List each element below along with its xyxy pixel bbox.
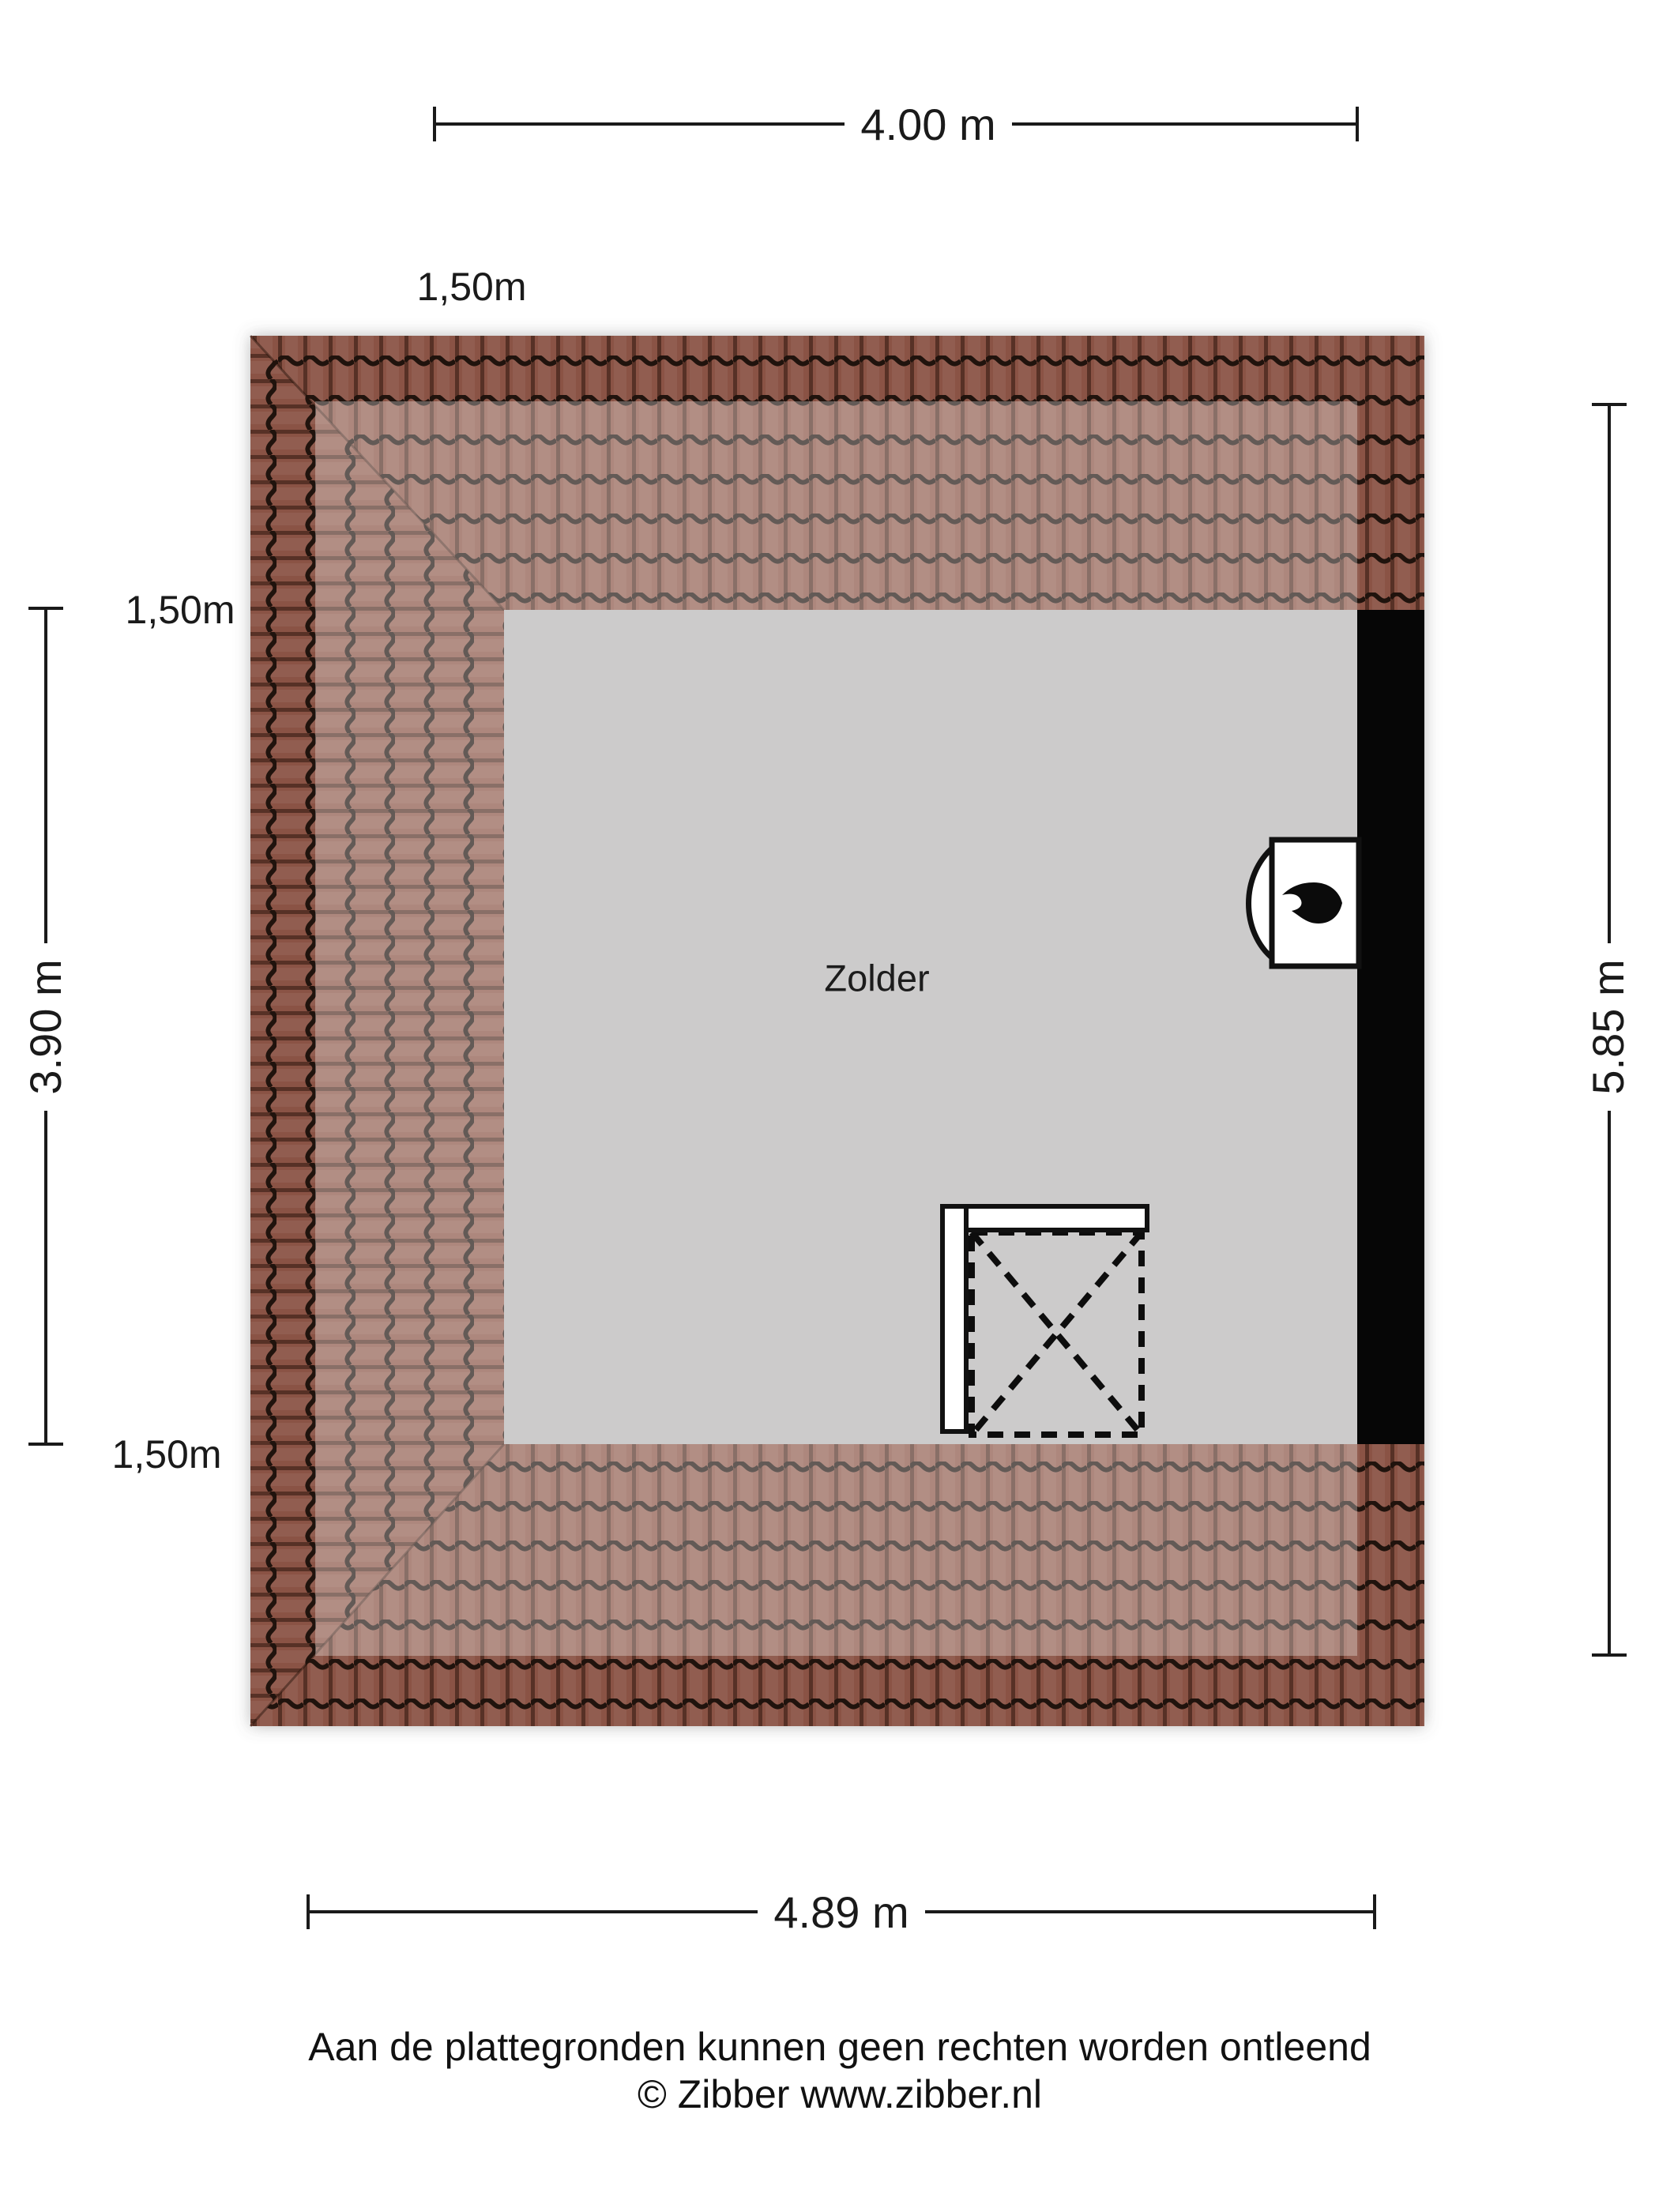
room-label-zolder: Zolder: [824, 960, 929, 997]
copyright-text: © Zibber www.zibber.nl: [638, 2075, 1042, 2114]
dimension-top-label: 4.00 m: [860, 103, 995, 147]
room-floor-zolder: [504, 610, 1357, 1444]
floorplan-drawing: [0, 0, 1659, 2212]
stair-top-wall: [966, 1206, 1147, 1230]
stair-side-wall: [942, 1206, 966, 1431]
contour-label-top: 1,50m: [417, 267, 527, 307]
disclaimer-text: Aan de plattegronden kunnen geen rechten…: [308, 2027, 1371, 2067]
right-wall: [1357, 610, 1424, 1444]
dimension-bottom-label: 4.89 m: [773, 1890, 908, 1935]
dimension-left-label: 3.90 m: [24, 959, 68, 1094]
contour-label-bottom: 1,50m: [112, 1435, 222, 1474]
contour-label-left: 1,50m: [126, 590, 235, 630]
floorplan-page: 4.00 m 1,50m 1,50m 3.90 m 5.85 m Zolder …: [0, 0, 1659, 2212]
dimension-right-label: 5.85 m: [1586, 959, 1631, 1094]
boiler: [1249, 840, 1360, 966]
